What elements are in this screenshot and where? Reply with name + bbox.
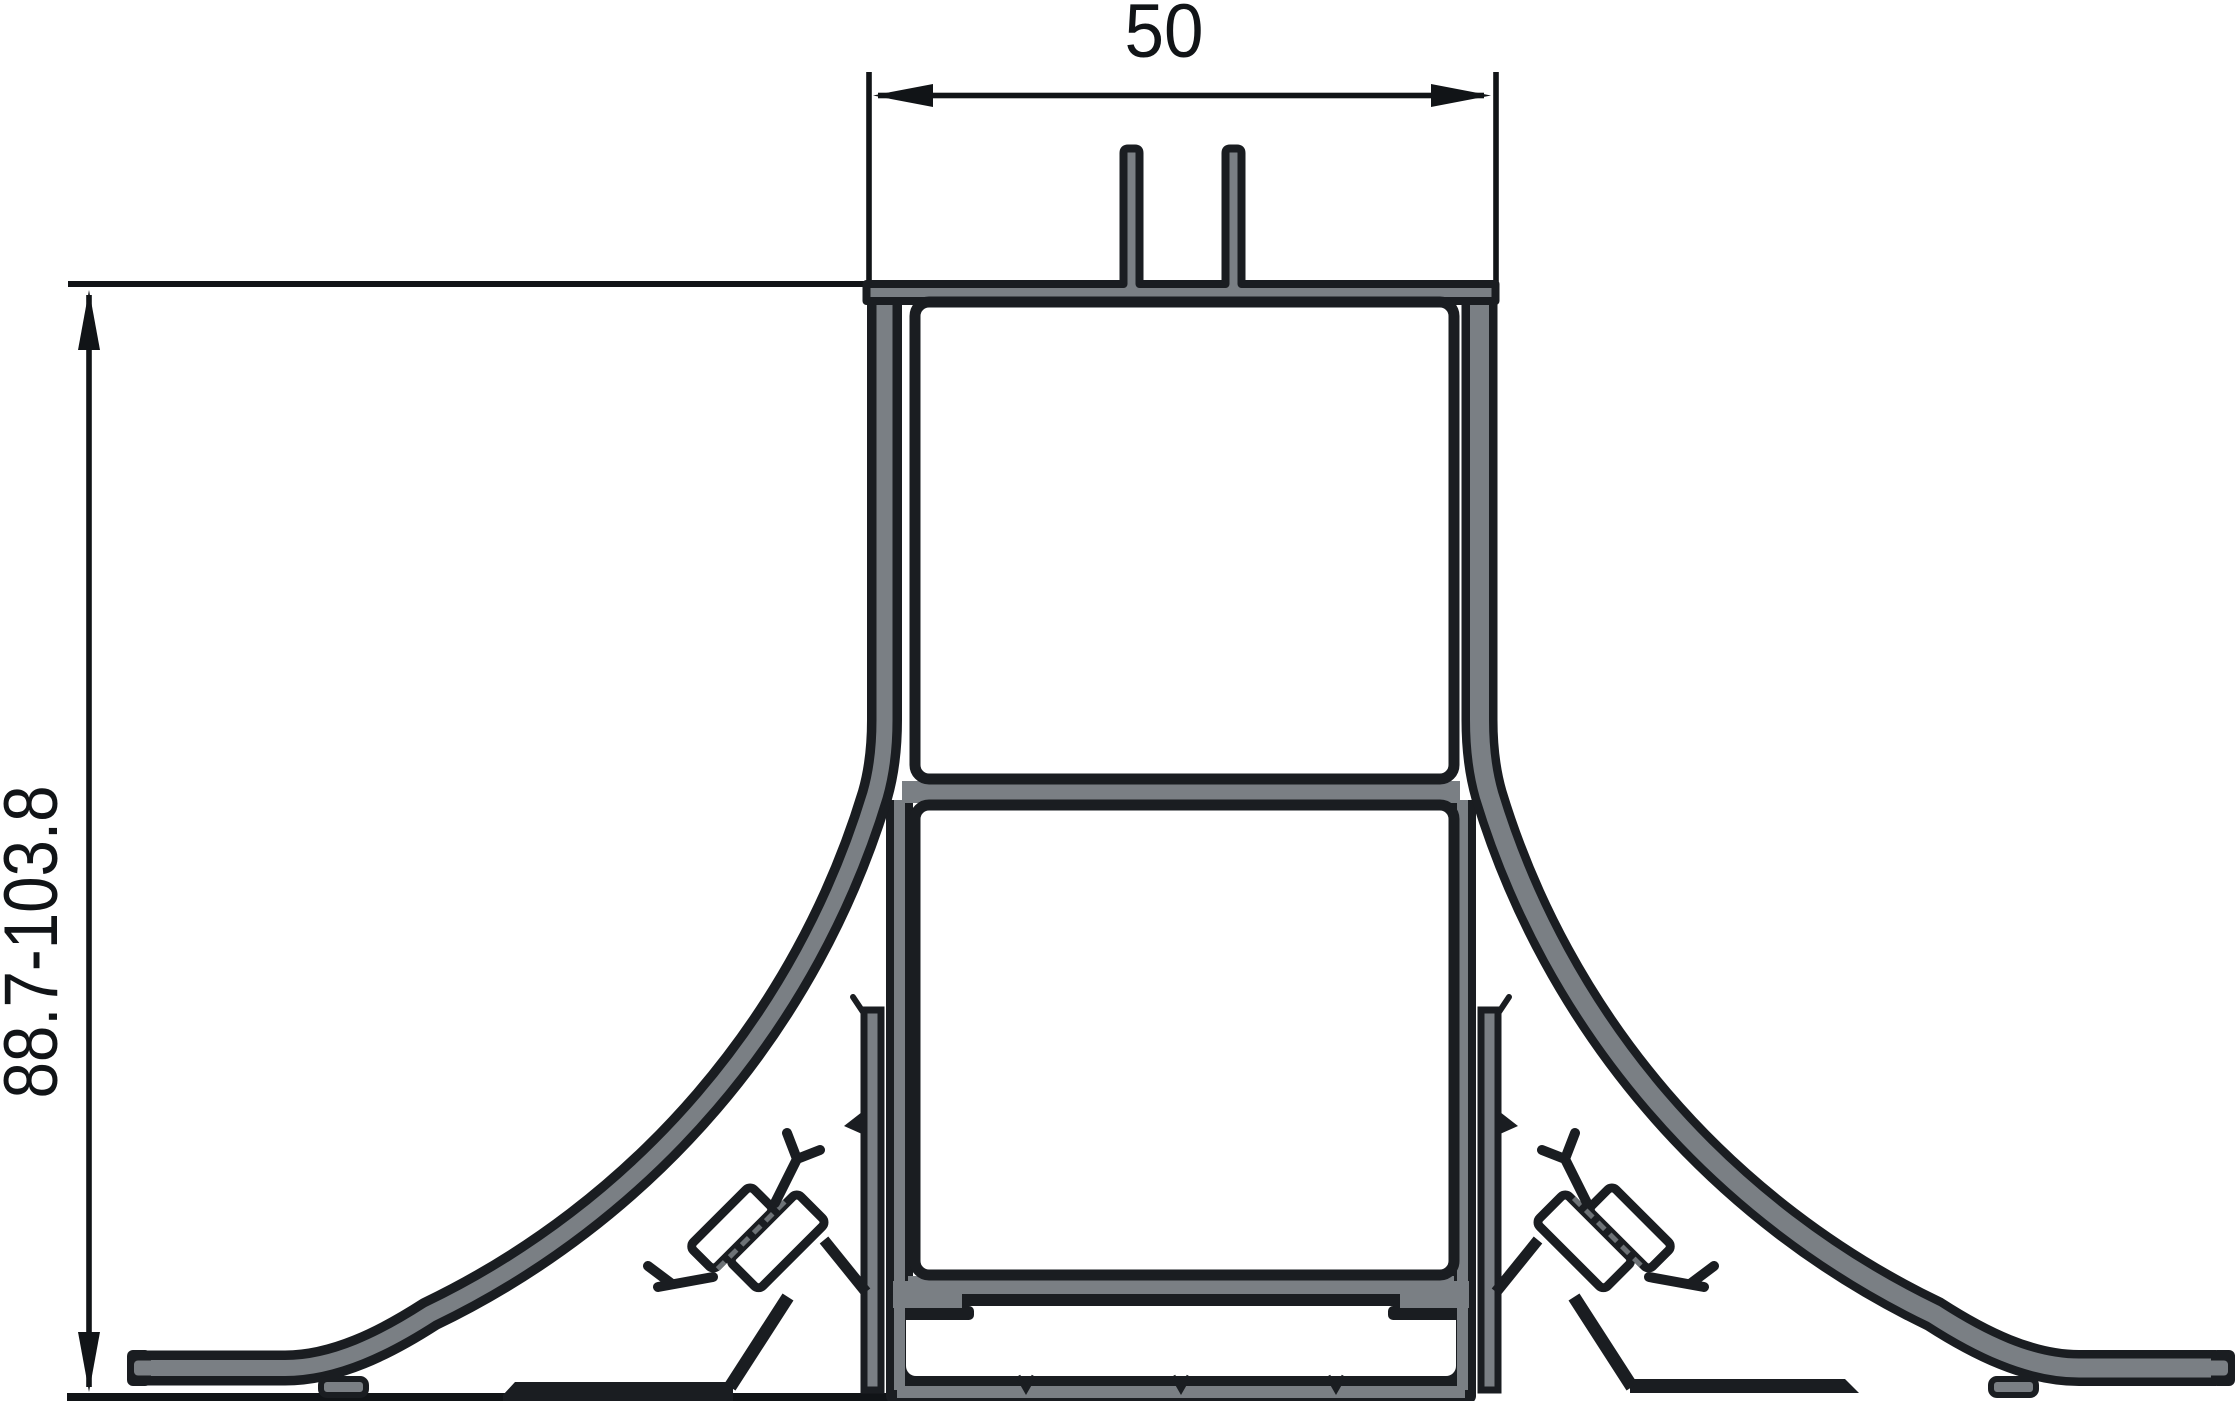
svg-text:50: 50 <box>1125 0 1204 74</box>
svg-text:88.7-103.8: 88.7-103.8 <box>0 786 74 1099</box>
